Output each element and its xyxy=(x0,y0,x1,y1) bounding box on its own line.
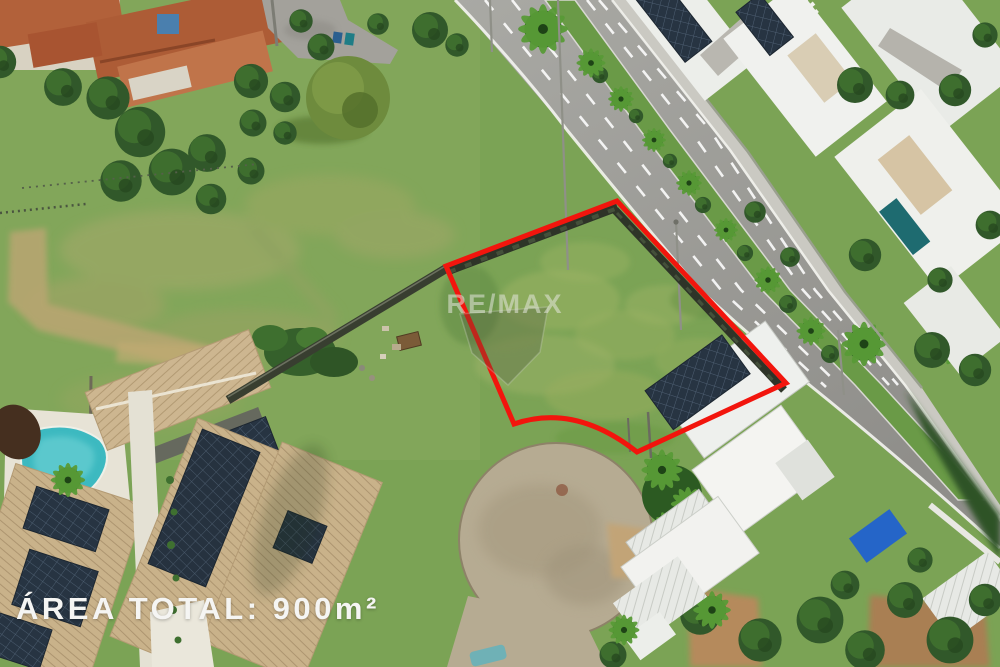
trash-bin xyxy=(344,33,355,46)
watermark-text: RE/MAX xyxy=(446,289,563,319)
aerial-scene: RE/MAX xyxy=(0,0,1000,667)
aerial-photo: RE/MAX ÁREA TOTAL: 900m² xyxy=(0,0,1000,667)
roof-glass xyxy=(157,14,179,34)
streetlight-head xyxy=(673,219,678,224)
trash-bin xyxy=(332,31,342,43)
manhole xyxy=(556,484,568,496)
area-total-label: ÁREA TOTAL: 900m² xyxy=(16,591,380,627)
